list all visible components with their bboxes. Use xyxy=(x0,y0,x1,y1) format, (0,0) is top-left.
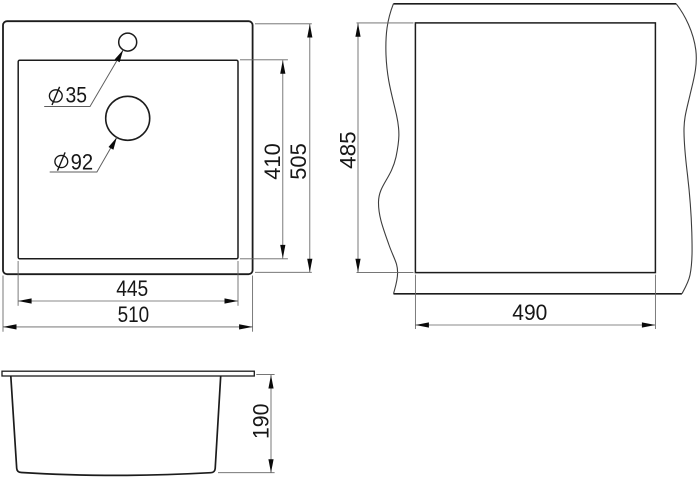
svg-text:445: 445 xyxy=(116,276,148,301)
svg-text:190: 190 xyxy=(249,404,274,440)
svg-text:505: 505 xyxy=(286,143,311,180)
svg-text:510: 510 xyxy=(118,302,150,327)
svg-text:92: 92 xyxy=(71,149,94,174)
svg-text:485: 485 xyxy=(336,131,361,169)
svg-text:490: 490 xyxy=(512,300,547,325)
svg-text:35: 35 xyxy=(66,83,88,108)
svg-text:410: 410 xyxy=(260,143,285,180)
